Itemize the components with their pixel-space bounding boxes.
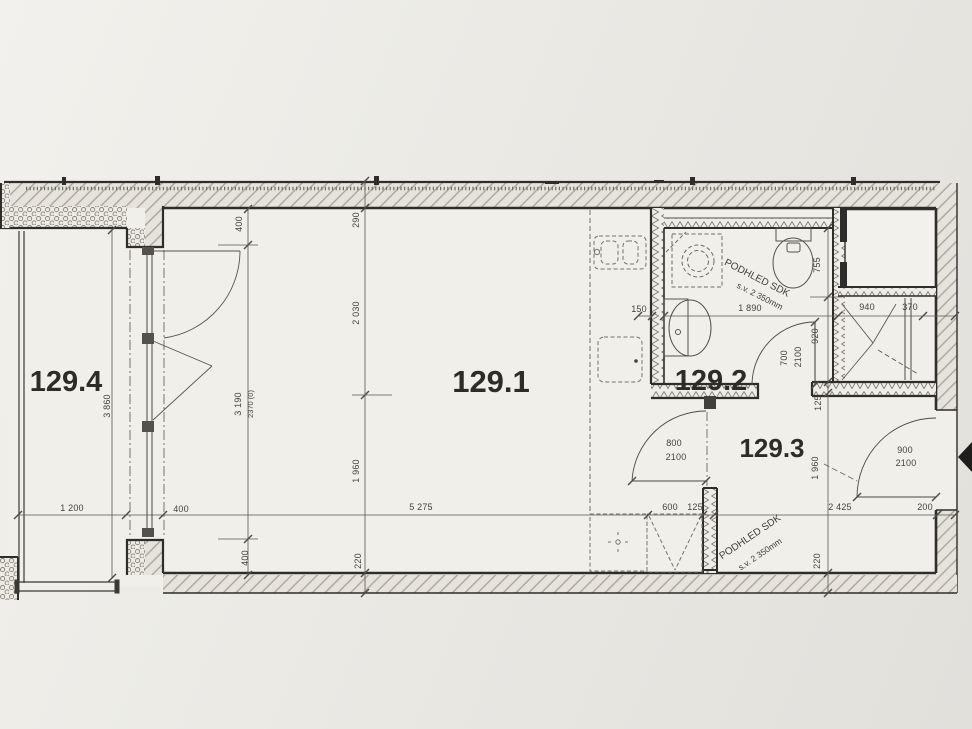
dim-1890: 1 890: [738, 303, 762, 313]
dim-hall-door-height: 2100: [666, 452, 687, 462]
floorplan-sheet: 129.1 129.2 129.3 129.4 PODHLED SDK s.v.…: [0, 0, 972, 729]
dim-5275: 5 275: [409, 502, 433, 512]
dim-bath-door-height: 2100: [793, 347, 803, 368]
dim-920: 920: [810, 328, 820, 344]
dim-940: 940: [859, 302, 875, 312]
dim-2030: 2 030: [351, 301, 361, 325]
room-label-hall: 129.3: [739, 433, 804, 463]
dim-1200: 1 200: [60, 503, 84, 513]
room-label-living: 129.1: [452, 364, 530, 399]
dim-370: 370: [902, 302, 918, 312]
dim-400-bottom: 400: [240, 550, 250, 566]
dim-bath-door-width: 700: [779, 350, 789, 366]
dim-2425: 2 425: [828, 502, 852, 512]
dim-290: 290: [351, 212, 361, 228]
dim-125-right: 125: [813, 395, 823, 411]
dim-200: 200: [917, 502, 933, 512]
dim-3860: 3 860: [102, 394, 112, 418]
room-label-balcony: 129.4: [30, 366, 103, 398]
dim-hall-door-width: 800: [666, 438, 682, 448]
dim-400-left: 400: [173, 504, 189, 514]
dim-220-left: 220: [353, 553, 363, 569]
entrance-arrow-icon: [958, 442, 972, 472]
dim-entry-door-width: 900: [897, 445, 913, 455]
dim-150: 150: [631, 304, 647, 314]
room-label-bathroom: 129.2: [675, 365, 748, 397]
dim-1960-right: 1 960: [810, 456, 820, 480]
dim-600: 600: [662, 502, 678, 512]
dim-220-right: 220: [812, 553, 822, 569]
dim-755: 755: [812, 257, 822, 273]
floorplan-drawing: 129.1 129.2 129.3 129.4 PODHLED SDK s.v.…: [0, 0, 972, 729]
dim-2370: 2370 (0): [246, 390, 255, 418]
dim-3190: 3 190: [233, 392, 243, 416]
dim-entry-door-height: 2100: [896, 458, 917, 468]
dim-400-top: 400: [234, 216, 244, 232]
dim-1960-left: 1 960: [351, 459, 361, 483]
dim-125-bottom: 125: [687, 502, 703, 512]
